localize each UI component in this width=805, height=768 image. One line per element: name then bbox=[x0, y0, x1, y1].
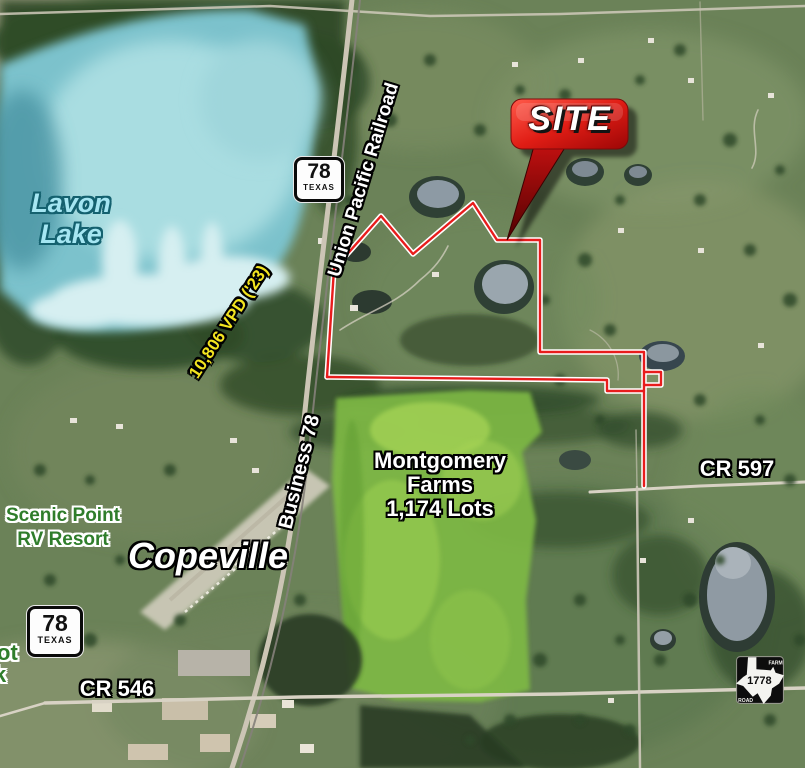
cr-546-label: CR 546 bbox=[67, 677, 167, 700]
cr-597-label: CR 597 bbox=[687, 457, 787, 480]
development-label-line2: Farms bbox=[340, 473, 540, 497]
development-label: Montgomery Farms 1,174 Lots bbox=[340, 449, 540, 521]
aerial-site-map: Lavon Lake Union Pacific Railroad 10,806… bbox=[0, 0, 805, 768]
rv-resort-label: Scenic Point RV Resort bbox=[0, 504, 126, 552]
lake-shape bbox=[0, 10, 320, 331]
highway-78-shield-top: 78 TEXAS bbox=[294, 157, 344, 202]
town-label: Copeville bbox=[118, 537, 298, 575]
development-label-line1: Montgomery bbox=[340, 449, 540, 473]
lake-label-line1: Lavon bbox=[0, 188, 142, 219]
edge-clipped-label-line2: k bbox=[0, 663, 6, 686]
rv-resort-label-line1: Scenic Point bbox=[0, 504, 126, 528]
development-label-line3: 1,174 Lots bbox=[340, 497, 540, 521]
shield-state: TEXAS bbox=[30, 635, 80, 645]
fm-sign-road-text: ROAD bbox=[738, 698, 753, 704]
development-fields bbox=[332, 390, 542, 702]
edge-clipped-label-line1: ot bbox=[0, 641, 18, 664]
highway-78-shield-bottom: 78 TEXAS bbox=[27, 606, 83, 657]
rv-resort-label-line2: RV Resort bbox=[0, 528, 126, 552]
shield-number: 78 bbox=[30, 611, 80, 635]
site-callout-label: SITE bbox=[511, 102, 629, 138]
fm-sign-number: 1778 bbox=[747, 675, 772, 687]
fm-sign-farm-text: FARM bbox=[768, 661, 782, 667]
farm-road-1778-sign: FARM 1778 ROAD bbox=[736, 656, 784, 704]
shield-state: TEXAS bbox=[297, 183, 341, 192]
satellite-basemap bbox=[0, 0, 805, 768]
shield-number: 78 bbox=[297, 161, 341, 183]
lake-label: Lavon Lake bbox=[0, 188, 142, 250]
lake-label-line2: Lake bbox=[0, 219, 142, 250]
